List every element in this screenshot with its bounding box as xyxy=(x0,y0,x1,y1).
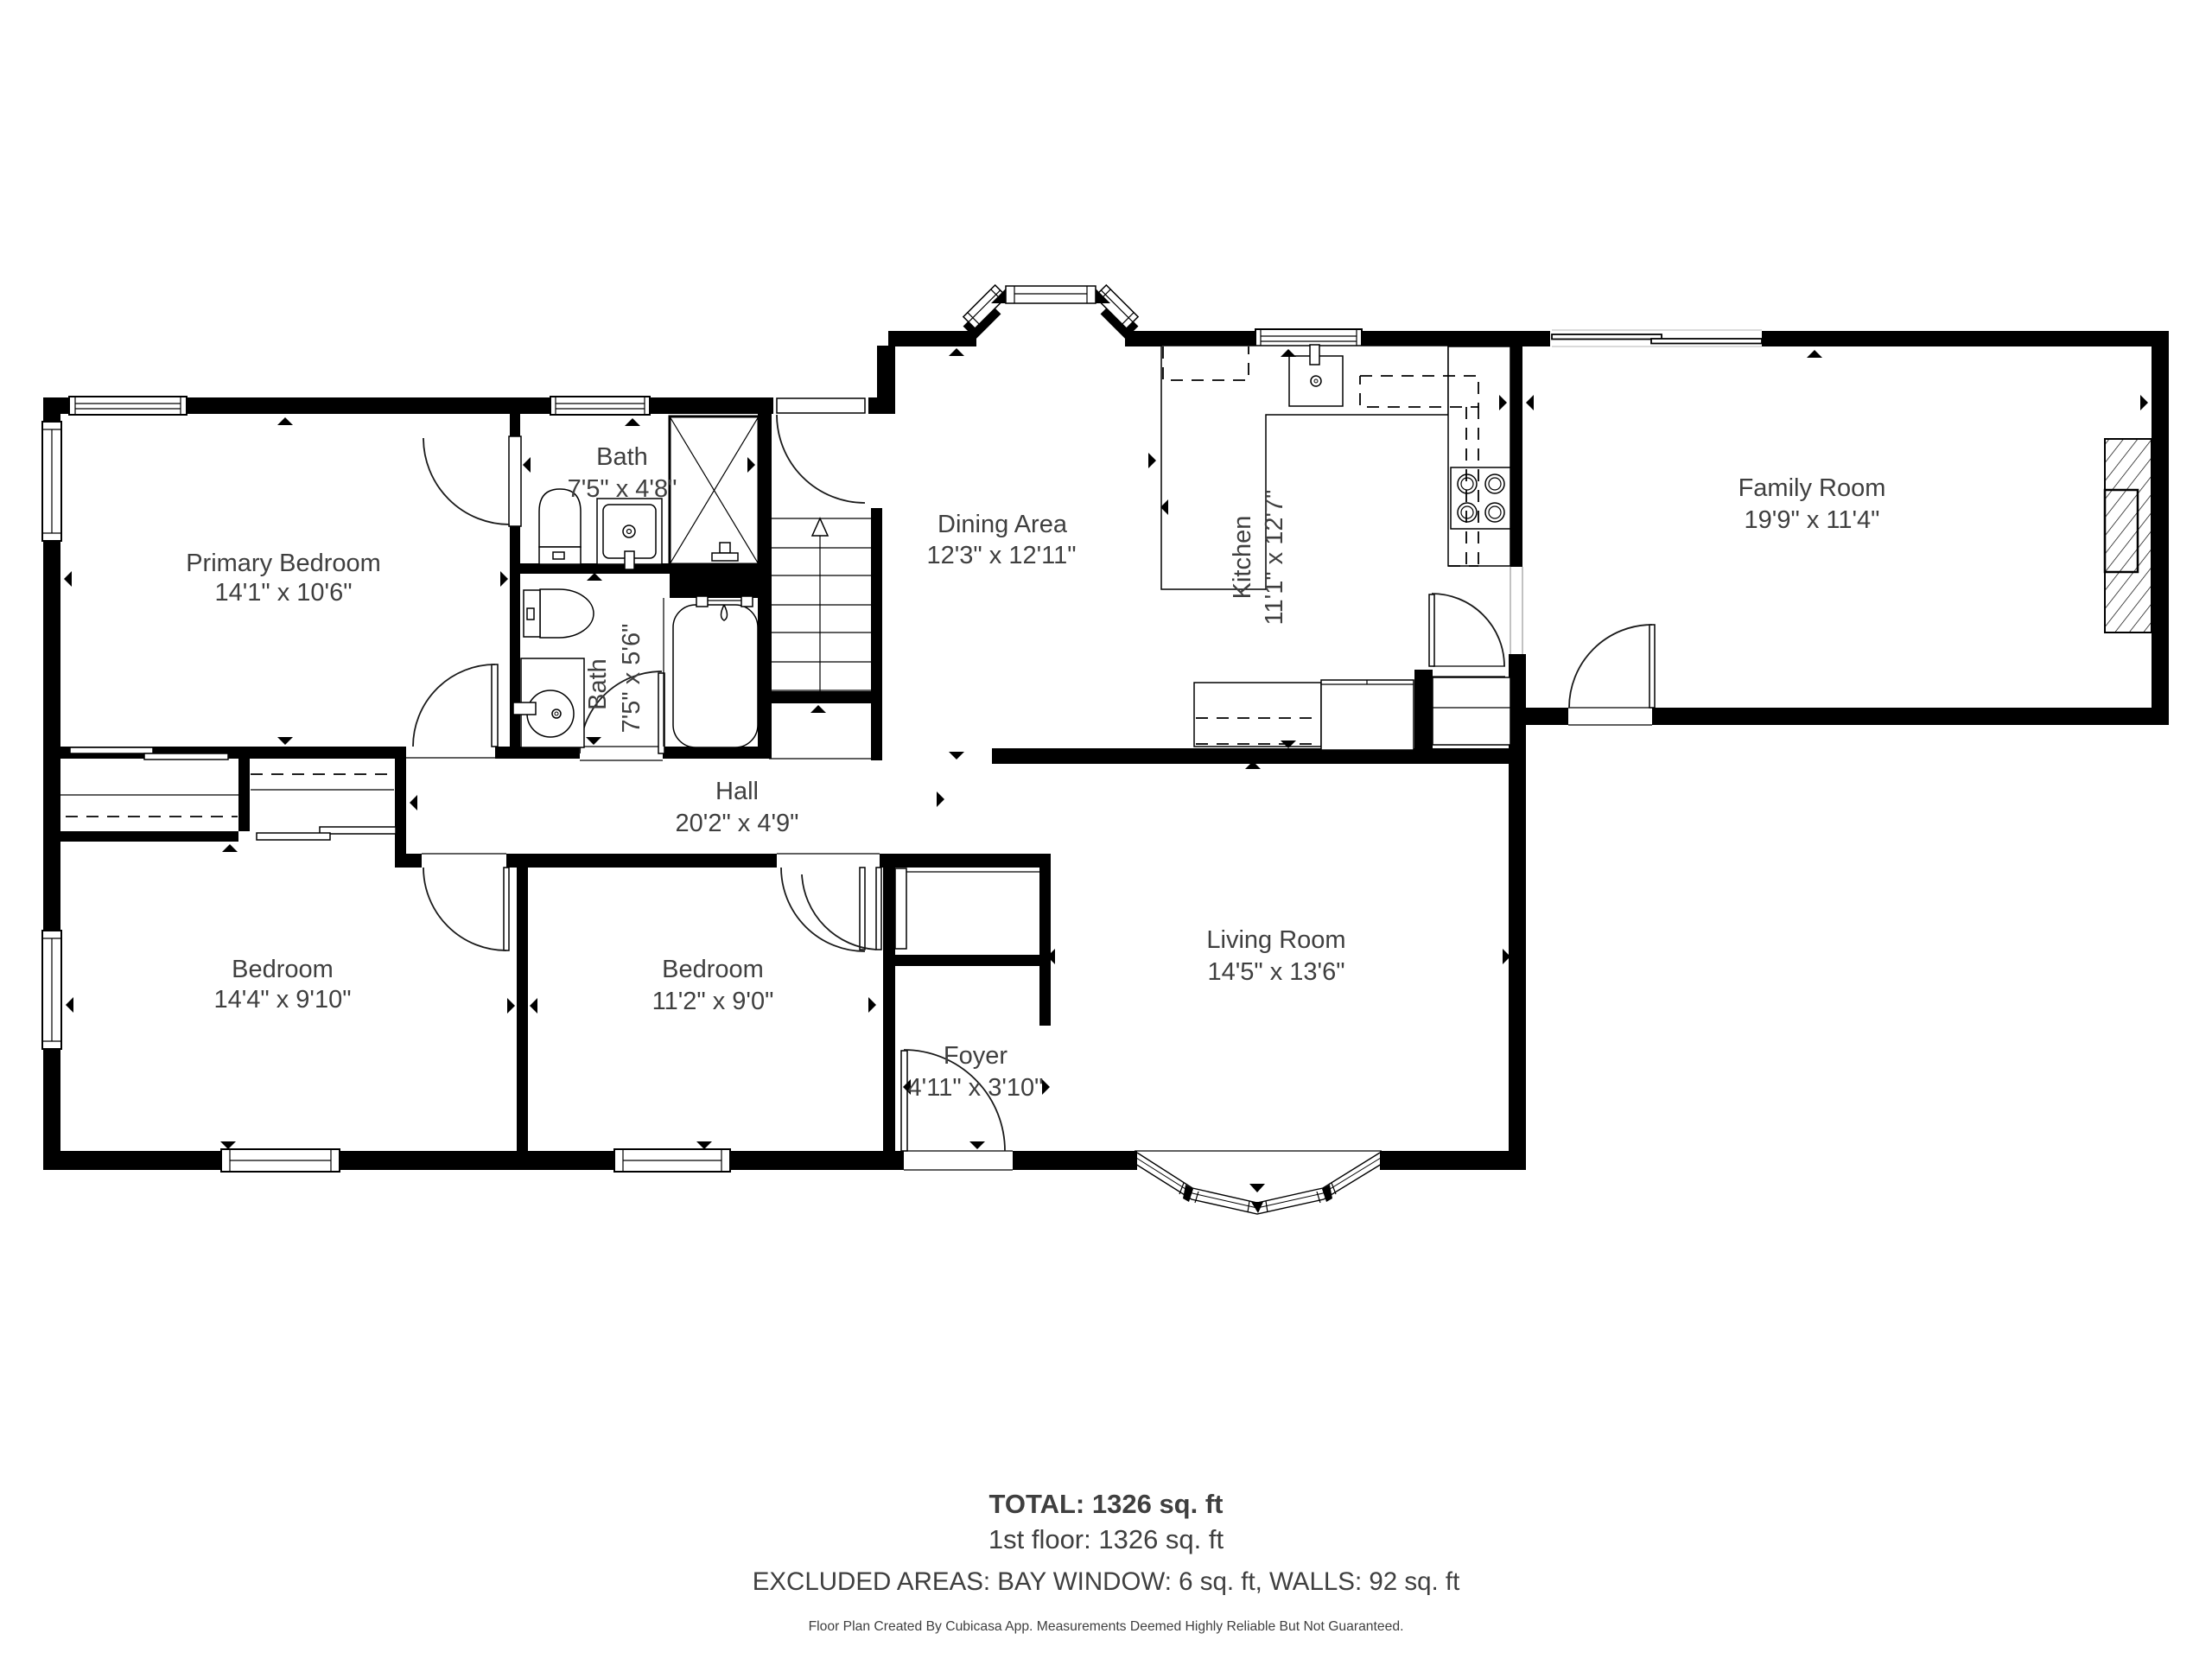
svg-text:TOTAL: 1326 sq. ft: TOTAL: 1326 sq. ft xyxy=(988,1489,1223,1519)
svg-text:Bedroom: Bedroom xyxy=(662,956,764,983)
svg-text:14'5" x 13'6": 14'5" x 13'6" xyxy=(1207,958,1344,986)
svg-text:12'3" x 12'11": 12'3" x 12'11" xyxy=(926,542,1076,569)
svg-text:EXCLUDED AREAS: BAY WINDOW: 6: EXCLUDED AREAS: BAY WINDOW: 6 sq. ft, WA… xyxy=(753,1567,1460,1596)
svg-text:Bath: Bath xyxy=(584,658,612,710)
svg-text:Floor Plan Created By Cubicasa: Floor Plan Created By Cubicasa App. Meas… xyxy=(809,1619,1404,1634)
svg-text:Living Room: Living Room xyxy=(1206,926,1345,954)
svg-text:14'1" x 10'6": 14'1" x 10'6" xyxy=(214,579,352,607)
svg-text:4'11" x 3'10": 4'11" x 3'10" xyxy=(908,1074,1044,1102)
svg-text:Kitchen: Kitchen xyxy=(1229,516,1256,600)
svg-text:Primary Bedroom: Primary Bedroom xyxy=(186,550,381,577)
svg-text:Foyer: Foyer xyxy=(944,1042,1007,1070)
svg-text:Hall: Hall xyxy=(715,778,759,805)
svg-text:7'5" x 5'6": 7'5" x 5'6" xyxy=(618,624,645,734)
svg-text:1st floor: 1326 sq. ft: 1st floor: 1326 sq. ft xyxy=(988,1524,1224,1554)
svg-text:11'1" x 12'7": 11'1" x 12'7" xyxy=(1261,490,1288,626)
svg-text:Dining Area: Dining Area xyxy=(938,511,1068,538)
svg-text:11'2" x 9'0": 11'2" x 9'0" xyxy=(652,988,774,1015)
svg-text:14'4" x 9'10": 14'4" x 9'10" xyxy=(213,986,351,1014)
svg-text:7'5" x 4'8": 7'5" x 4'8" xyxy=(568,475,677,503)
svg-text:Bath: Bath xyxy=(596,443,648,471)
svg-text:19'9" x 11'4": 19'9" x 11'4" xyxy=(1745,506,1880,534)
svg-text:Bedroom: Bedroom xyxy=(232,956,334,983)
svg-text:Family Room: Family Room xyxy=(1738,474,1886,502)
svg-text:20'2" x 4'9": 20'2" x 4'9" xyxy=(676,810,799,837)
